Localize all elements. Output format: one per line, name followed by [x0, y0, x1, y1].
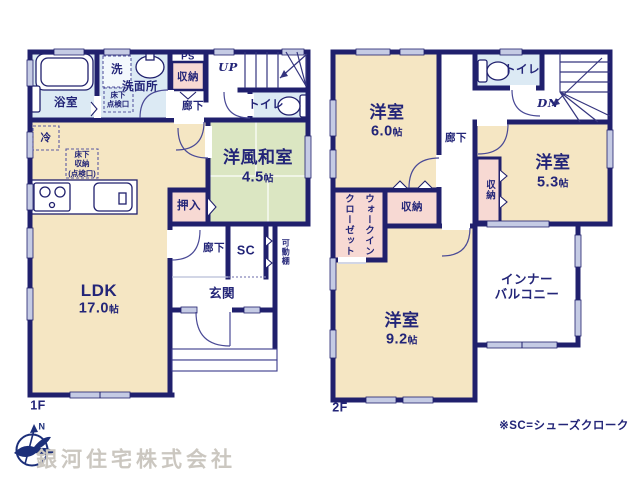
label-storage-2f: 収納 [401, 201, 423, 213]
label-hall-upper-1f: 廊下 [182, 100, 204, 112]
label-washer: 洗 [111, 64, 123, 78]
floor-label-2f: 2F [332, 401, 348, 416]
compass-arrow [30, 424, 38, 433]
label-hall-lower-1f: 廊下 [203, 242, 225, 254]
closet-door-mark-ps [180, 92, 196, 99]
room-size-bedroom-53: 5.3帖 [537, 174, 569, 191]
stairs-up-icon [245, 52, 307, 88]
room-size-washitsu: 4.5帖 [242, 169, 274, 186]
wic-line-2: クローゼット [343, 194, 353, 257]
label-shoes-cloak: SC [237, 244, 255, 259]
shelf-mark-2 [266, 258, 272, 268]
room-size-bedroom-92: 9.2帖 [386, 331, 418, 348]
room-label-washitsu: 洋風和室 [223, 148, 293, 168]
floorplan-drawing [0, 0, 640, 480]
label-stairs-down: DN [537, 97, 558, 111]
toilet-tank-2f [478, 60, 487, 82]
room-label-bath: 浴室 [54, 97, 78, 111]
label-fridge: 冷 [41, 132, 52, 144]
label-movable-shelf: 可動棚 [281, 239, 289, 266]
label-ps: PS [181, 51, 195, 62]
entrance-steps [172, 349, 277, 371]
stairs-down-icon [552, 52, 610, 122]
company-name: 銀河住宅株式会社 [36, 449, 236, 474]
compass-north-label: N [39, 422, 46, 433]
wic-line-1: ウォークイン [363, 194, 373, 257]
label-storage-1f: 収納 [177, 71, 199, 83]
label-oshiire: 押入 [177, 200, 201, 214]
label-underfloor-hatch: 床下 点検口 [107, 91, 130, 110]
label-underfloor-storage: 床下 収納 (点検口) [68, 150, 96, 178]
label-closet-53: 収納 [484, 180, 494, 201]
room-size-bedroom-6: 6.0帖 [371, 123, 403, 140]
room-label-bedroom-6: 洋室 [370, 103, 405, 123]
room-label-inner-balcony: インナー バルコニー [495, 272, 560, 302]
room-label-bedroom-92: 洋室 [385, 311, 420, 331]
room-label-entrance: 玄関 [209, 287, 235, 302]
shelf-mark-1 [266, 236, 272, 246]
label-hall-2f: 廊下 [445, 132, 467, 144]
floorplan-page: 浴室 洗面所 洗 床下 点検口 PS 収納 廊下 UP トイレ 冷 床下 収納 … [0, 0, 640, 480]
floor-label-1f: 1F [30, 399, 46, 414]
room-label-toilet-1f: トイレ [248, 99, 284, 113]
label-stairs-up: UP [218, 61, 238, 75]
label-walk-in-closet: ウォークイン クローゼット [333, 194, 383, 257]
room-label-bedroom-53: 洋室 [536, 153, 571, 173]
bathtub-inner [41, 58, 88, 86]
room-label-ldk: LDK [81, 281, 117, 301]
footnote-shoes-cloak: ※SC=シューズクローク [499, 420, 629, 434]
kitchen-faucet [119, 193, 126, 204]
room-size-ldk: 17.0帖 [79, 300, 120, 317]
room-label-toilet-2f: トイレ [504, 64, 540, 78]
